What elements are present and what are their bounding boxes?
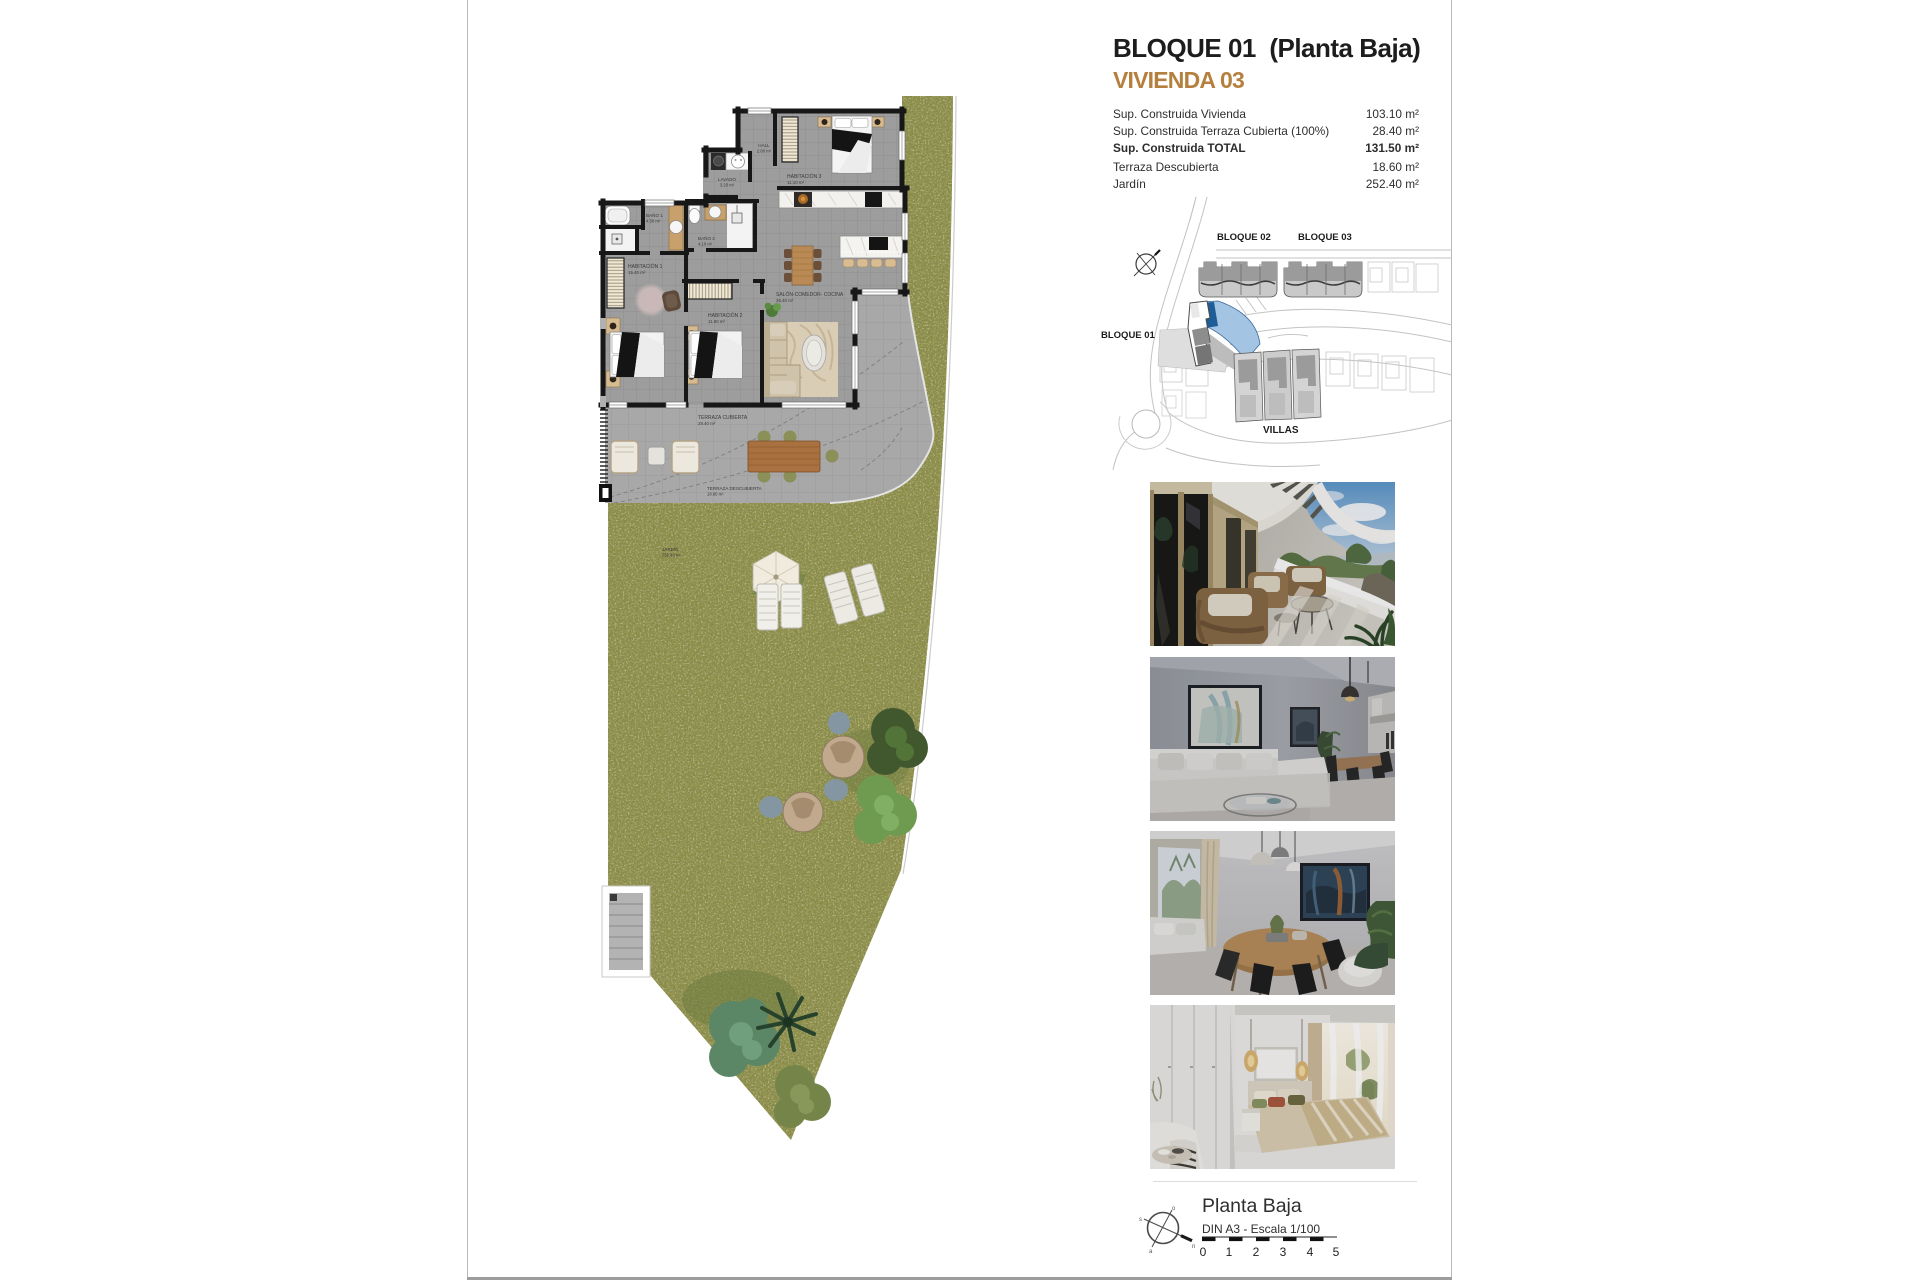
svg-text:a: a (1149, 1249, 1153, 1255)
svg-text:HALL: HALL (758, 143, 770, 148)
svg-text:BLOQUE 01: BLOQUE 01 (1101, 330, 1156, 341)
svg-text:11.90 m²: 11.90 m² (708, 319, 726, 324)
svg-text:11.10 m²: 11.10 m² (787, 180, 805, 185)
svg-text:BAÑO 1: BAÑO 1 (646, 212, 663, 218)
svg-text:3.20 m²: 3.20 m² (720, 183, 735, 188)
svg-text:HABITACIÓN 2: HABITACIÓN 2 (708, 312, 743, 319)
svg-text:4.10 m²: 4.10 m² (698, 242, 713, 247)
svg-text:4: 4 (1307, 1245, 1314, 1259)
svg-text:BLOQUE 03: BLOQUE 03 (1298, 232, 1352, 243)
svg-text:LAVADO: LAVADO (718, 177, 736, 182)
svg-text:15.40 m²: 15.40 m² (628, 270, 646, 275)
svg-text:2: 2 (1253, 1245, 1260, 1259)
svg-text:VILLAS: VILLAS (1263, 425, 1299, 436)
svg-text:2.80 m²: 2.80 m² (757, 149, 772, 154)
svg-text:0: 0 (1200, 1245, 1207, 1259)
svg-text:3: 3 (1280, 1245, 1287, 1259)
svg-text:s: s (1139, 1217, 1142, 1223)
svg-text:n: n (1192, 1244, 1195, 1250)
svg-text:36.40 m²: 36.40 m² (776, 298, 794, 303)
svg-text:o: o (1172, 1206, 1176, 1212)
svg-text:HABITACIÓN 1: HABITACIÓN 1 (628, 263, 663, 270)
svg-text:TERRAZA DESCUBIERTA: TERRAZA DESCUBIERTA (707, 486, 763, 491)
svg-text:HABITACIÓN 3: HABITACIÓN 3 (787, 173, 822, 180)
svg-text:28.40 m²: 28.40 m² (698, 421, 716, 426)
svg-text:BLOQUE 02: BLOQUE 02 (1217, 232, 1271, 243)
svg-text:4.50 m²: 4.50 m² (646, 219, 661, 224)
svg-text:1: 1 (1226, 1245, 1233, 1259)
svg-text:SALÓN-COMEDOR- COCINA: SALÓN-COMEDOR- COCINA (776, 291, 844, 298)
svg-text:BAÑO 2: BAÑO 2 (698, 235, 715, 241)
svg-text:18.60 m²: 18.60 m² (707, 492, 724, 497)
svg-text:JARDÍN: JARDÍN (662, 546, 679, 552)
svg-text:252.40 m²: 252.40 m² (662, 553, 681, 558)
svg-text:5: 5 (1333, 1245, 1340, 1259)
